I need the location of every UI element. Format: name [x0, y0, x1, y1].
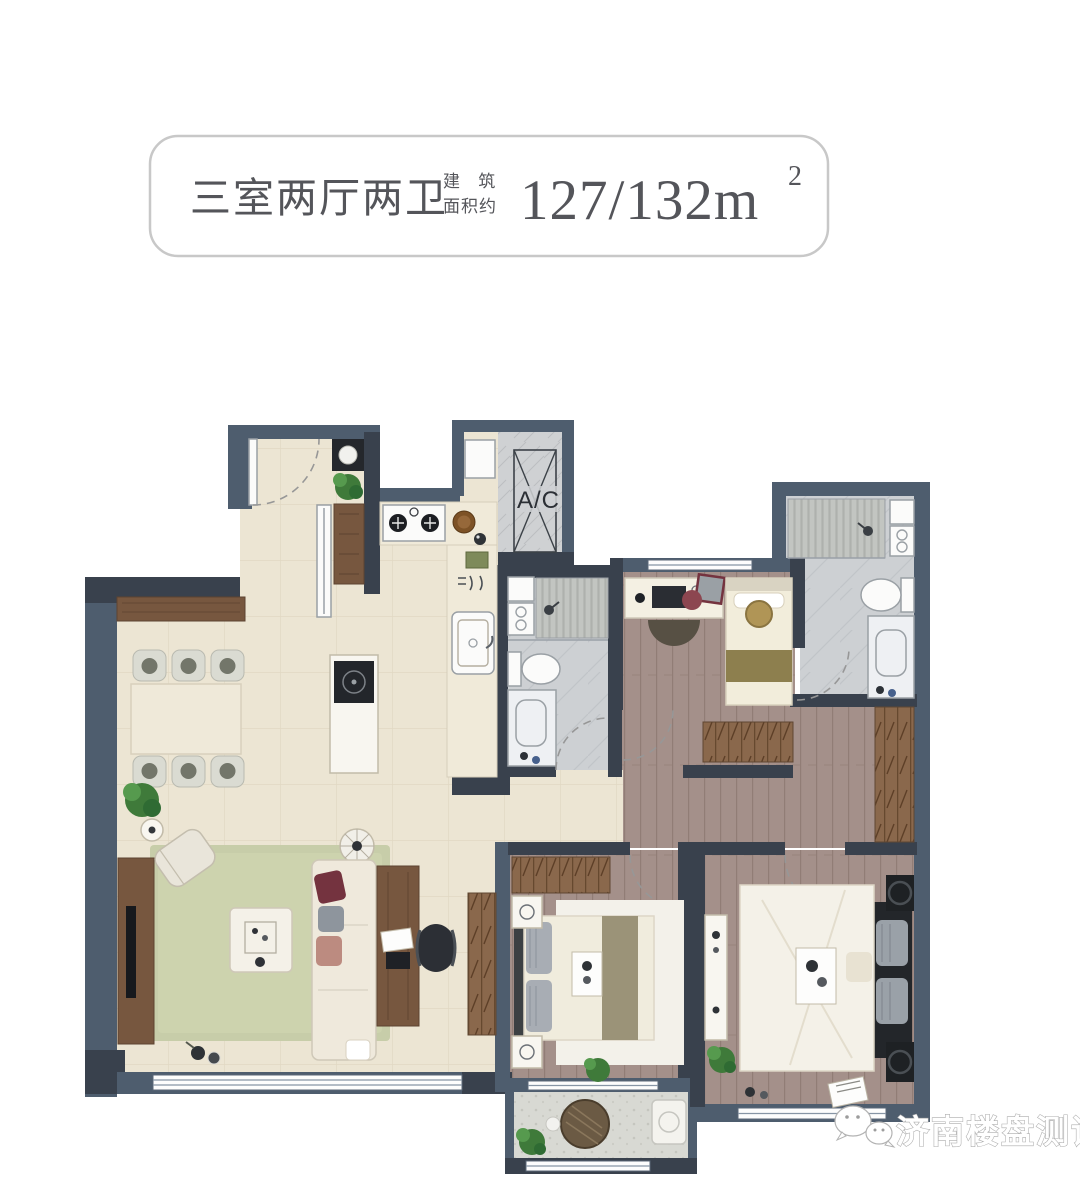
sofa-cushion-salmon	[316, 936, 342, 966]
dining-chair	[133, 650, 166, 681]
cushion	[846, 952, 872, 982]
papers	[381, 928, 413, 952]
bed-runner	[726, 650, 792, 682]
entry-tall-cabinet	[334, 504, 364, 584]
watermark-text: 济南楼盘测评	[896, 1113, 1080, 1150]
pillow	[876, 978, 908, 1024]
sofa-throw	[346, 1040, 370, 1060]
layout-label: 三室两厅两卫	[190, 175, 448, 221]
dining-chair	[172, 650, 205, 681]
single-bed	[726, 578, 792, 705]
nightstand	[512, 896, 542, 928]
bookshelf	[468, 893, 496, 1035]
ball-decor	[546, 1117, 560, 1131]
area-label-line1: 建 筑	[443, 172, 502, 191]
title-card: 三室两厅两卫 建 筑 面积约 127/132m 2	[150, 136, 828, 256]
nightstand	[512, 1036, 542, 1068]
bath-cabinet	[508, 577, 534, 601]
fridge-icon	[465, 440, 495, 478]
floor-plan-image: 三室两厅两卫 建 筑 面积约 127/132m 2	[0, 0, 1080, 1177]
kitchen-sink-icon	[452, 612, 494, 674]
laptop-icon	[386, 952, 410, 969]
toilet-icon	[861, 578, 914, 612]
bedroom2-window	[528, 1081, 658, 1090]
area-value: 127/132m	[520, 169, 759, 232]
bedroom2-bed	[514, 916, 654, 1040]
balcony-seat	[652, 1100, 686, 1144]
bath-cabinet	[890, 500, 914, 524]
study-wardrobe	[703, 722, 793, 762]
tv-icon	[126, 906, 136, 998]
stove-icon	[383, 505, 445, 541]
bedroom2-wardrobe	[512, 857, 610, 893]
area-label-line2: 面积约	[443, 197, 497, 216]
ac-label: A/C	[517, 487, 560, 514]
living-room-window	[153, 1075, 462, 1090]
laptop-icon	[652, 586, 686, 608]
sofa	[312, 860, 376, 1060]
nightstand-mat	[886, 1042, 914, 1082]
hat-decor-icon	[746, 601, 772, 627]
floor-plan: A/C	[85, 420, 930, 1174]
floor-plan-page: 三室两厅两卫 建 筑 面积约 127/132m 2	[0, 0, 1080, 1177]
office-chair	[416, 924, 456, 972]
dining-chair	[172, 756, 205, 787]
desk-chair	[682, 590, 702, 610]
vanity-sink	[868, 616, 914, 698]
washbasin-icon	[508, 603, 534, 635]
vanity-sink	[508, 690, 556, 766]
balcony-window	[526, 1161, 650, 1171]
sofa-cushion-gray	[318, 906, 344, 932]
floor-lamp-icon	[340, 829, 374, 863]
dining-chair	[211, 650, 244, 681]
coffee-table	[230, 908, 292, 972]
hallway-wardrobe	[875, 707, 914, 842]
pillow	[876, 920, 908, 966]
flower-decor-icon	[339, 446, 357, 464]
dining-chair	[211, 756, 244, 787]
area-superscript: 2	[788, 161, 802, 192]
washbasin-icon	[890, 526, 914, 556]
study-desk	[377, 866, 419, 1026]
sideboard	[117, 597, 245, 621]
bed-runner	[602, 916, 638, 1040]
entry-door-leaf	[249, 439, 257, 505]
nightstand-mat	[886, 875, 914, 911]
bed-tray	[572, 952, 602, 996]
kitchen-island	[330, 655, 378, 773]
dining-table	[131, 684, 241, 754]
toilet-icon	[508, 652, 560, 686]
study-window	[648, 560, 752, 570]
dining-chair	[133, 756, 166, 787]
bed-tray	[796, 948, 836, 1004]
corridor-floor	[490, 770, 630, 846]
